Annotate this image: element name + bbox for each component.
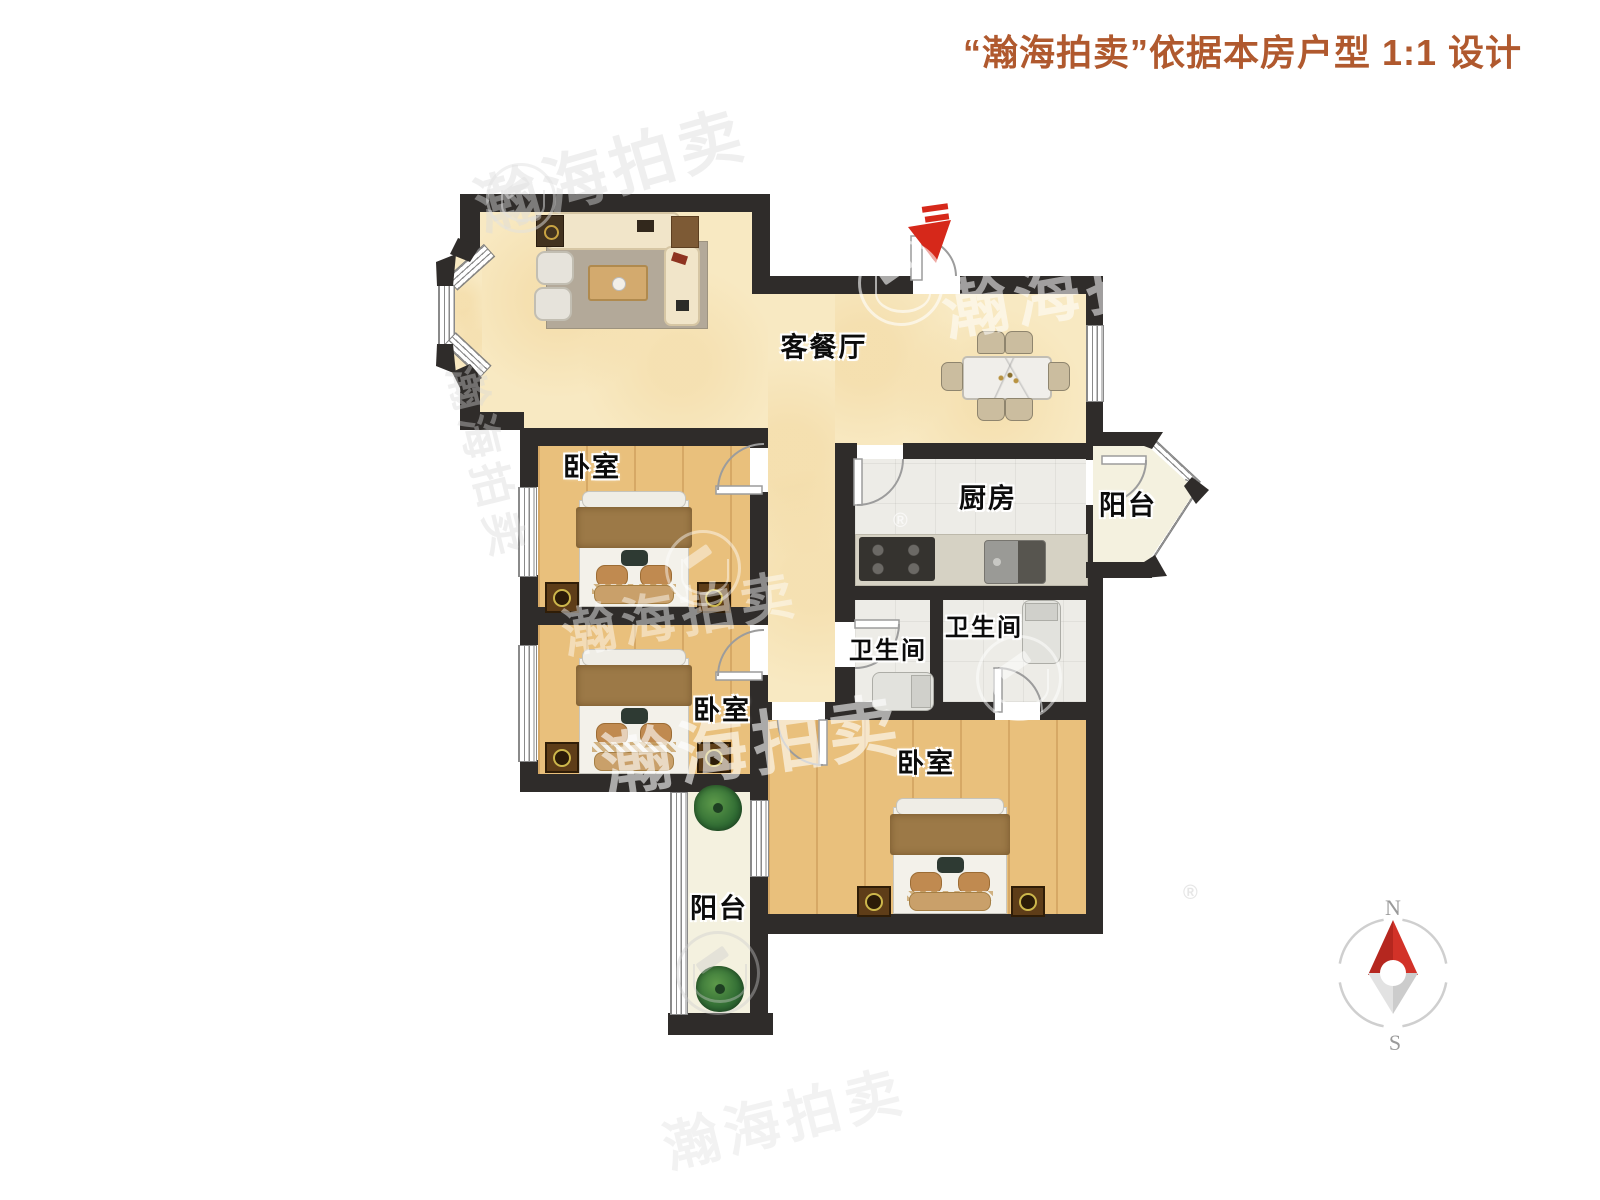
watermark-logo-icon [665,530,741,606]
compass-north-label: N [1385,895,1401,920]
watermark-logo-icon [858,240,944,326]
kitchen-door-leaf [854,459,862,505]
room-label-bath2: 卫生间 [945,608,1023,643]
room-label-kitchen: 厨房 [959,477,1017,516]
registered-mark: ® [1183,882,1198,905]
watermark-logo-icon [676,931,760,1015]
compass-hub [1380,960,1406,986]
registered-mark: ® [893,510,908,533]
room-label-balcony-left: 阳台 [690,887,748,926]
balcony-door-leaf [1102,456,1146,464]
watermark-logo-icon [976,635,1062,721]
compass-south-label: S [1389,1030,1401,1055]
wall [1086,432,1152,446]
door-arc [857,459,903,505]
wall [1086,562,1152,578]
watermark-logo-icon [486,163,556,233]
room-label-bedroom2: 卧室 [693,689,751,728]
floor-plan: N S 瀚海拍卖 瀚海拍卖 瀚海拍卖 瀚海拍卖 瀚海拍卖 瀚海拍卖 ® ® 客餐… [0,0,1600,1200]
room-label-bedroom3: 卧室 [897,742,955,781]
wall [436,254,456,286]
room-label-bath1: 卫生间 [849,631,927,666]
wall [1144,432,1163,449]
page-title: “瀚海拍卖”依据本房户型 1:1 设计 [963,24,1522,76]
bedroom-door-leaf [716,486,762,494]
bedroom-door-leaf [716,672,762,680]
door-arc [718,444,764,490]
compass: N S [1340,895,1446,1055]
bath-door-leaf [855,620,899,628]
room-label-living: 客餐厅 [781,326,868,365]
room-label-balcony-right: 阳台 [1099,484,1157,523]
room-label-bedroom1: 卧室 [563,446,621,485]
